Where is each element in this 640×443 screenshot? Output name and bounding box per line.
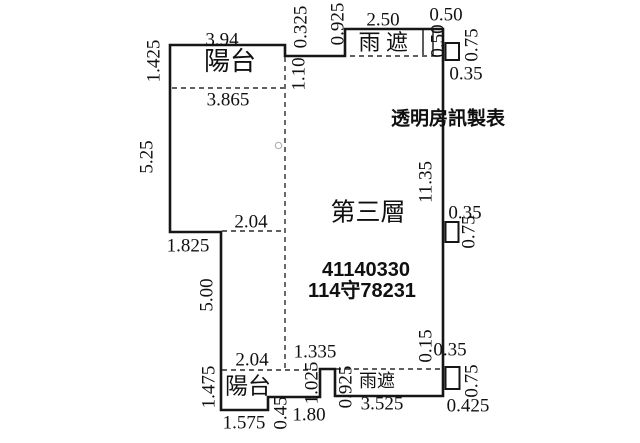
floor-plan-page: 陽台 雨遮 陽台 雨遮 第三層 透明房訊製表 41140330 114守7823… (0, 0, 640, 443)
dim-balcony-top-left: 1.425 (145, 40, 164, 83)
dim-balcony-bot-top-right: 1.335 (294, 343, 337, 362)
dim-canopy-bot-left: 0.925 (337, 366, 356, 409)
dim-step-top: 0.325 (292, 6, 311, 49)
pillar-box-bottom-right (446, 367, 460, 389)
dim-box-br-width: 0.425 (447, 397, 490, 416)
maker-watermark: 透明房訊製表 (391, 110, 505, 129)
dim-box-br-top: 0.35 (433, 341, 466, 360)
dim-balcony-bot-bottom: 1.575 (223, 414, 266, 433)
dim-box-tr-width: 0.50 (429, 6, 462, 25)
dim-box-tr-below: 0.35 (449, 65, 482, 84)
dim-balcony-bot-top-left: 2.04 (235, 351, 268, 370)
room-label-balcony-top: 陽台 (204, 49, 256, 75)
plan-id-line2: 114守78231 (308, 281, 416, 301)
dim-left-wall-upper: 5.25 (138, 140, 157, 173)
dim-balcony-top-width: 3.94 (205, 31, 238, 50)
dim-canopy-top-rise: 0.925 (329, 3, 348, 46)
dim-balcony-top-depth: 1.10 (290, 57, 309, 90)
room-label-canopy-top: 雨遮 (358, 32, 413, 54)
room-label-canopy-bottom: 雨遮 (359, 372, 395, 390)
dim-wall-gap: 0.15 (417, 329, 436, 362)
dim-left-wall-lower: 5.00 (198, 278, 217, 311)
dim-ledge-width: 1.825 (167, 237, 210, 256)
dim-canopy-top-width: 2.50 (366, 11, 399, 30)
dim-box-br-height: 0.75 (463, 364, 482, 397)
dim-box-mr-height: 0.75 (460, 215, 479, 248)
dim-right-wall: 11.35 (417, 161, 436, 203)
dim-box-tr-height: 0.75 (463, 28, 482, 61)
dim-balcony-bot-left: 1.475 (200, 366, 219, 409)
dim-canopy-bot-width: 3.525 (361, 395, 404, 414)
floor-title: 第三層 (330, 201, 405, 226)
dim-balcony-top-inner: 3.865 (207, 91, 250, 110)
plan-id-line1: 41140330 (322, 260, 410, 280)
dim-bottom-wall: 1.80 (292, 406, 325, 425)
dim-ledge-top: 2.04 (234, 213, 267, 232)
room-label-balcony-bottom: 陽台 (225, 375, 271, 398)
pillar-box-mid-right (446, 222, 459, 242)
dim-pillar-height: 1.025 (303, 362, 322, 405)
dim-step-bot: 0.45 (272, 396, 291, 429)
scan-mark-circle (275, 142, 281, 148)
dim-canopy-top-end: 0.50 (429, 24, 448, 57)
